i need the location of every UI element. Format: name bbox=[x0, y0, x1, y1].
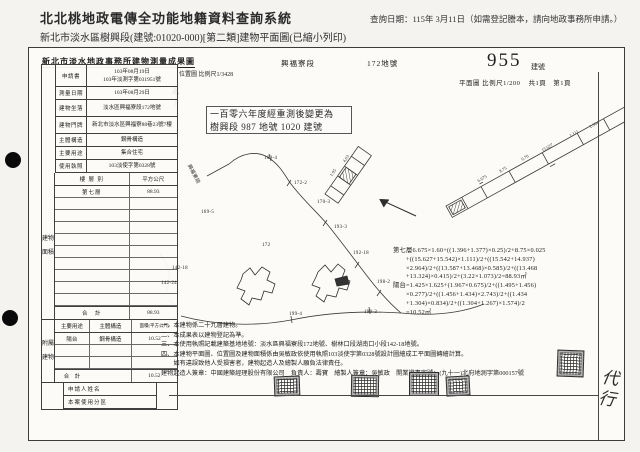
survey-document: 新北市淡水地政事務所建物測量成果圖 位置圖 比例尺1/3428 興福寮段 172… bbox=[28, 47, 625, 441]
empty-cell bbox=[89, 370, 132, 382]
subject-unit-highlight bbox=[335, 276, 349, 286]
table-row bbox=[55, 234, 177, 246]
table-header-row: 樓 層 別 平方公尺 bbox=[55, 173, 177, 186]
building-footprints bbox=[237, 264, 350, 305]
field-label: 測量日期 bbox=[56, 87, 87, 99]
section-vertical-label: 附屬建物 bbox=[42, 320, 55, 382]
empty-cell bbox=[55, 222, 130, 233]
annex-use: 陽台 bbox=[55, 333, 90, 344]
punch-hole bbox=[5, 152, 21, 168]
seal-stamp bbox=[409, 372, 439, 396]
empty-cell bbox=[130, 294, 177, 305]
parcel-label: 172 bbox=[262, 243, 270, 248]
column-header: 樓 層 別 bbox=[55, 173, 130, 185]
note-line: 四、本建物平面圖、位置圖及建物面積係由吳敏政依使用執照103淡使字第0328號設… bbox=[161, 350, 621, 360]
note-line: 建物起造人簽章：中國建築經理股份有限公司 負責人：壽寶 繪製人簽章：吳敏政 開業… bbox=[161, 369, 621, 379]
field-value: 集合住宅 bbox=[87, 147, 177, 159]
app-title: 北北桃地政電傳全功能地籍資料查詢系統 bbox=[40, 8, 292, 27]
seal-stamp bbox=[445, 375, 470, 396]
empty-cell bbox=[130, 234, 177, 245]
table-row: 主體構造 鋼骨構造 bbox=[55, 134, 177, 147]
form-right-divider bbox=[598, 72, 599, 440]
empty-cell bbox=[55, 246, 130, 257]
query-date: 查詢日期：115年 3月11日（如需登記謄本，請向地政事務所申請。） bbox=[370, 13, 622, 25]
total-label: 合 計 bbox=[55, 370, 89, 382]
building-number: 955 bbox=[487, 50, 522, 72]
parcel-label: 169-5 bbox=[201, 210, 214, 215]
annex-building-section: 附屬建物 主要用途 主體構造 面積(平方公尺) 陽台 鋼骨構造 10.52 bbox=[42, 320, 177, 383]
seal-stamp bbox=[557, 350, 585, 378]
note-line: 一、本建物係二十九層建物。 bbox=[161, 321, 621, 331]
floor-area-section: 建物面積 樓 層 別 平方公尺 第七層 88.93 bbox=[42, 173, 177, 320]
table-row: 測量日期 103年08月29日 bbox=[55, 87, 177, 100]
land-parcel-number: 172地號 bbox=[367, 58, 398, 69]
field-label: 使用執照 bbox=[56, 160, 87, 172]
column-header: 主體構造 bbox=[90, 320, 132, 332]
total-row: 合 計 88.93 bbox=[55, 306, 177, 319]
floor-area-table: 樓 層 別 平方公尺 第七層 88.93 bbox=[55, 173, 177, 319]
location-map-scale: 位置圖 比例尺1/3428 bbox=[179, 69, 233, 78]
notes-bottom-rule bbox=[169, 395, 598, 396]
parcel-label: 172-2 bbox=[294, 181, 307, 186]
table-row: 陽台 鋼骨構造 10.52 bbox=[55, 333, 177, 345]
formula-line: =10.52㎡ bbox=[393, 309, 608, 318]
table-row bbox=[55, 282, 177, 294]
page-count: 共1頁 第1頁 bbox=[528, 80, 571, 87]
empty-cell bbox=[55, 357, 90, 368]
formula-line: +1.304)×0.834)/2+((1.304+1.267)×1.574)/2 bbox=[393, 300, 608, 309]
empty-cell bbox=[55, 198, 130, 209]
parcel-label: 142-18 bbox=[172, 266, 188, 271]
empty-cell bbox=[130, 270, 177, 281]
column-header: 平方公尺 bbox=[130, 173, 177, 185]
note-line: 二、本成果表以建物登記為準。 bbox=[161, 331, 621, 341]
parcel-label: 169-4 bbox=[264, 156, 277, 161]
field-value: 鋼骨構造 bbox=[87, 134, 177, 146]
parcel-label: 170-3 bbox=[317, 200, 330, 205]
resurvey-note-line: 樹興段 987 地號 1020 建號 bbox=[210, 121, 348, 134]
field-label: 申請書 bbox=[56, 65, 87, 86]
empty-cell bbox=[130, 246, 177, 257]
field-label: 主體構造 bbox=[56, 134, 87, 146]
table-row: 主要用途 集合住宅 bbox=[55, 147, 177, 160]
table-row bbox=[55, 258, 177, 270]
empty-cell bbox=[55, 294, 130, 305]
formula-line: ×0.277)/2+((1.456+1.434)×2.743)/2+((1.43… bbox=[393, 291, 608, 300]
total-row: 合 計 10.52 bbox=[55, 369, 177, 382]
table-header-row: 主要用途 主體構造 面積(平方公尺) bbox=[55, 320, 177, 333]
formula-line: +((15.627+15.542)×1.111)/2+((15.542+14.9… bbox=[393, 256, 608, 265]
note-line: 三、本使用執照記載建築基地地號：淡水區興福寮段172地號、樹林口段湖南口小段14… bbox=[161, 340, 621, 350]
note-line: 如有違誤致他人受損害者，建物起造人及繪製人願負法律責任。 bbox=[161, 359, 621, 369]
empty-cell bbox=[55, 345, 90, 356]
empty-cell bbox=[55, 258, 130, 269]
annex-table: 主要用途 主體構造 面積(平方公尺) 陽台 鋼骨構造 10.52 合 計 bbox=[55, 320, 177, 382]
field-label: 建物坐落 bbox=[56, 100, 87, 116]
applicant-name-row: 申請人姓名 bbox=[63, 383, 157, 396]
annex-structure: 鋼骨構造 bbox=[90, 333, 132, 344]
parcel-label: 193-3 bbox=[334, 225, 347, 230]
field-value-line: 103年08月19日 bbox=[114, 68, 150, 76]
plan-scale-row: 平面圖 比例尺1/200共1頁 第1頁 bbox=[459, 77, 579, 87]
seal-stamp bbox=[274, 376, 301, 397]
empty-cell bbox=[130, 258, 177, 269]
table-row bbox=[55, 222, 177, 234]
empty-cell bbox=[90, 357, 132, 368]
seal-stamp bbox=[351, 375, 379, 397]
empty-cell bbox=[55, 210, 130, 221]
table-row bbox=[55, 294, 177, 306]
empty-cell bbox=[130, 222, 177, 233]
field-value: 103淡使字第0328號 bbox=[87, 160, 177, 172]
total-value: 88.93 bbox=[130, 307, 177, 319]
table-row: 申請書 103年08月19日 103年淡測字第031951號 bbox=[55, 65, 177, 87]
field-label: 建物門牌 bbox=[56, 117, 87, 133]
pointer-arrow-icon bbox=[380, 200, 416, 217]
floor-label: 第七層 bbox=[55, 186, 130, 197]
notes-block: 一、本建物係二十九層建物。 二、本成果表以建物登記為準。 三、本使用執照記載建築… bbox=[161, 321, 621, 379]
section-vertical-label: 建物面積 bbox=[42, 173, 55, 319]
field-value: 103年08月19日 103年淡測字第031951號 bbox=[87, 65, 177, 86]
field-value: 淡水區興福寮段172地號 bbox=[87, 100, 177, 116]
table-row bbox=[55, 210, 177, 222]
zoning-row: 本案使用分區 bbox=[63, 396, 157, 409]
table-row: 建物門牌 新北市淡水區興福寮88巷23號7樓 bbox=[55, 117, 177, 134]
table-row: 建物坐落 淡水區興福寮段172地號 bbox=[55, 100, 177, 117]
field-value-line: 103年淡測字第031951號 bbox=[103, 76, 161, 84]
table-row bbox=[55, 198, 177, 210]
balcony-hatch bbox=[449, 200, 466, 215]
table-row bbox=[55, 270, 177, 282]
empty-cell bbox=[55, 282, 130, 293]
field-value: 103年08月29日 bbox=[87, 87, 177, 99]
table-row bbox=[55, 345, 177, 357]
resurvey-callout-box: 一百零六年度經重測後變更為 樹興段 987 地號 1020 建號 bbox=[206, 106, 352, 134]
table-row bbox=[55, 246, 177, 258]
floor-area: 88.93 bbox=[130, 186, 177, 197]
empty-cell bbox=[55, 270, 130, 281]
land-section-name: 興福寮段 bbox=[281, 58, 315, 69]
parcel-label: 199-3 bbox=[364, 310, 377, 315]
area-formula-block: 第七層6.675×1.60+((1.396+1.377)×0.25)/2+8.7… bbox=[393, 247, 608, 317]
field-value: 新北市淡水區興福寮88巷23號7樓 bbox=[87, 117, 177, 133]
survey-data-table: 申請書 103年08月19日 103年淡測字第031951號 測量日期 103年… bbox=[41, 64, 178, 410]
empty-cell bbox=[130, 198, 177, 209]
plan-scale: 平面圖 比例尺1/200 bbox=[459, 80, 520, 87]
punch-hole bbox=[2, 310, 18, 326]
empty-cell bbox=[55, 234, 130, 245]
parcel-label: 142-24 bbox=[161, 281, 177, 286]
building-number-suffix: 建號 bbox=[531, 62, 545, 72]
column-header: 主要用途 bbox=[55, 320, 90, 332]
query-system-page: 北北桃地政電傳全功能地籍資料查詢系統 查詢日期：115年 3月11日（如需登記謄… bbox=[0, 0, 640, 452]
parcel-label: 198-2 bbox=[377, 280, 390, 285]
empty-cell bbox=[90, 345, 132, 356]
formula-line: 第七層6.675×1.60+((1.396+1.377)×0.25)/2+8.7… bbox=[393, 247, 608, 256]
empty-cell bbox=[130, 210, 177, 221]
table-row: 使用執照 103淡使字第0328號 bbox=[55, 160, 177, 173]
table-row bbox=[55, 357, 177, 369]
formula-line: 陽台=1.425×1.625+(1.967×0.675)/2+((1.495+1… bbox=[393, 282, 608, 291]
formula-line: +13.324)×0.415)/2+(3.22×1.073)/2=88.93㎡ bbox=[393, 273, 608, 282]
table-row: 第七層 88.93 bbox=[55, 186, 177, 198]
resurvey-note-line: 一百零六年度經重測後變更為 bbox=[210, 108, 348, 121]
parcel-label: 192-18 bbox=[353, 251, 369, 256]
parcel-label: 199-4 bbox=[289, 312, 302, 317]
field-label: 主要用途 bbox=[56, 147, 87, 159]
document-subtitle: 新北市淡水區樹興段(建號:01020-000)[第二類]建物平面圖(已縮小列印) bbox=[40, 29, 346, 44]
total-label: 合 計 bbox=[55, 307, 130, 319]
